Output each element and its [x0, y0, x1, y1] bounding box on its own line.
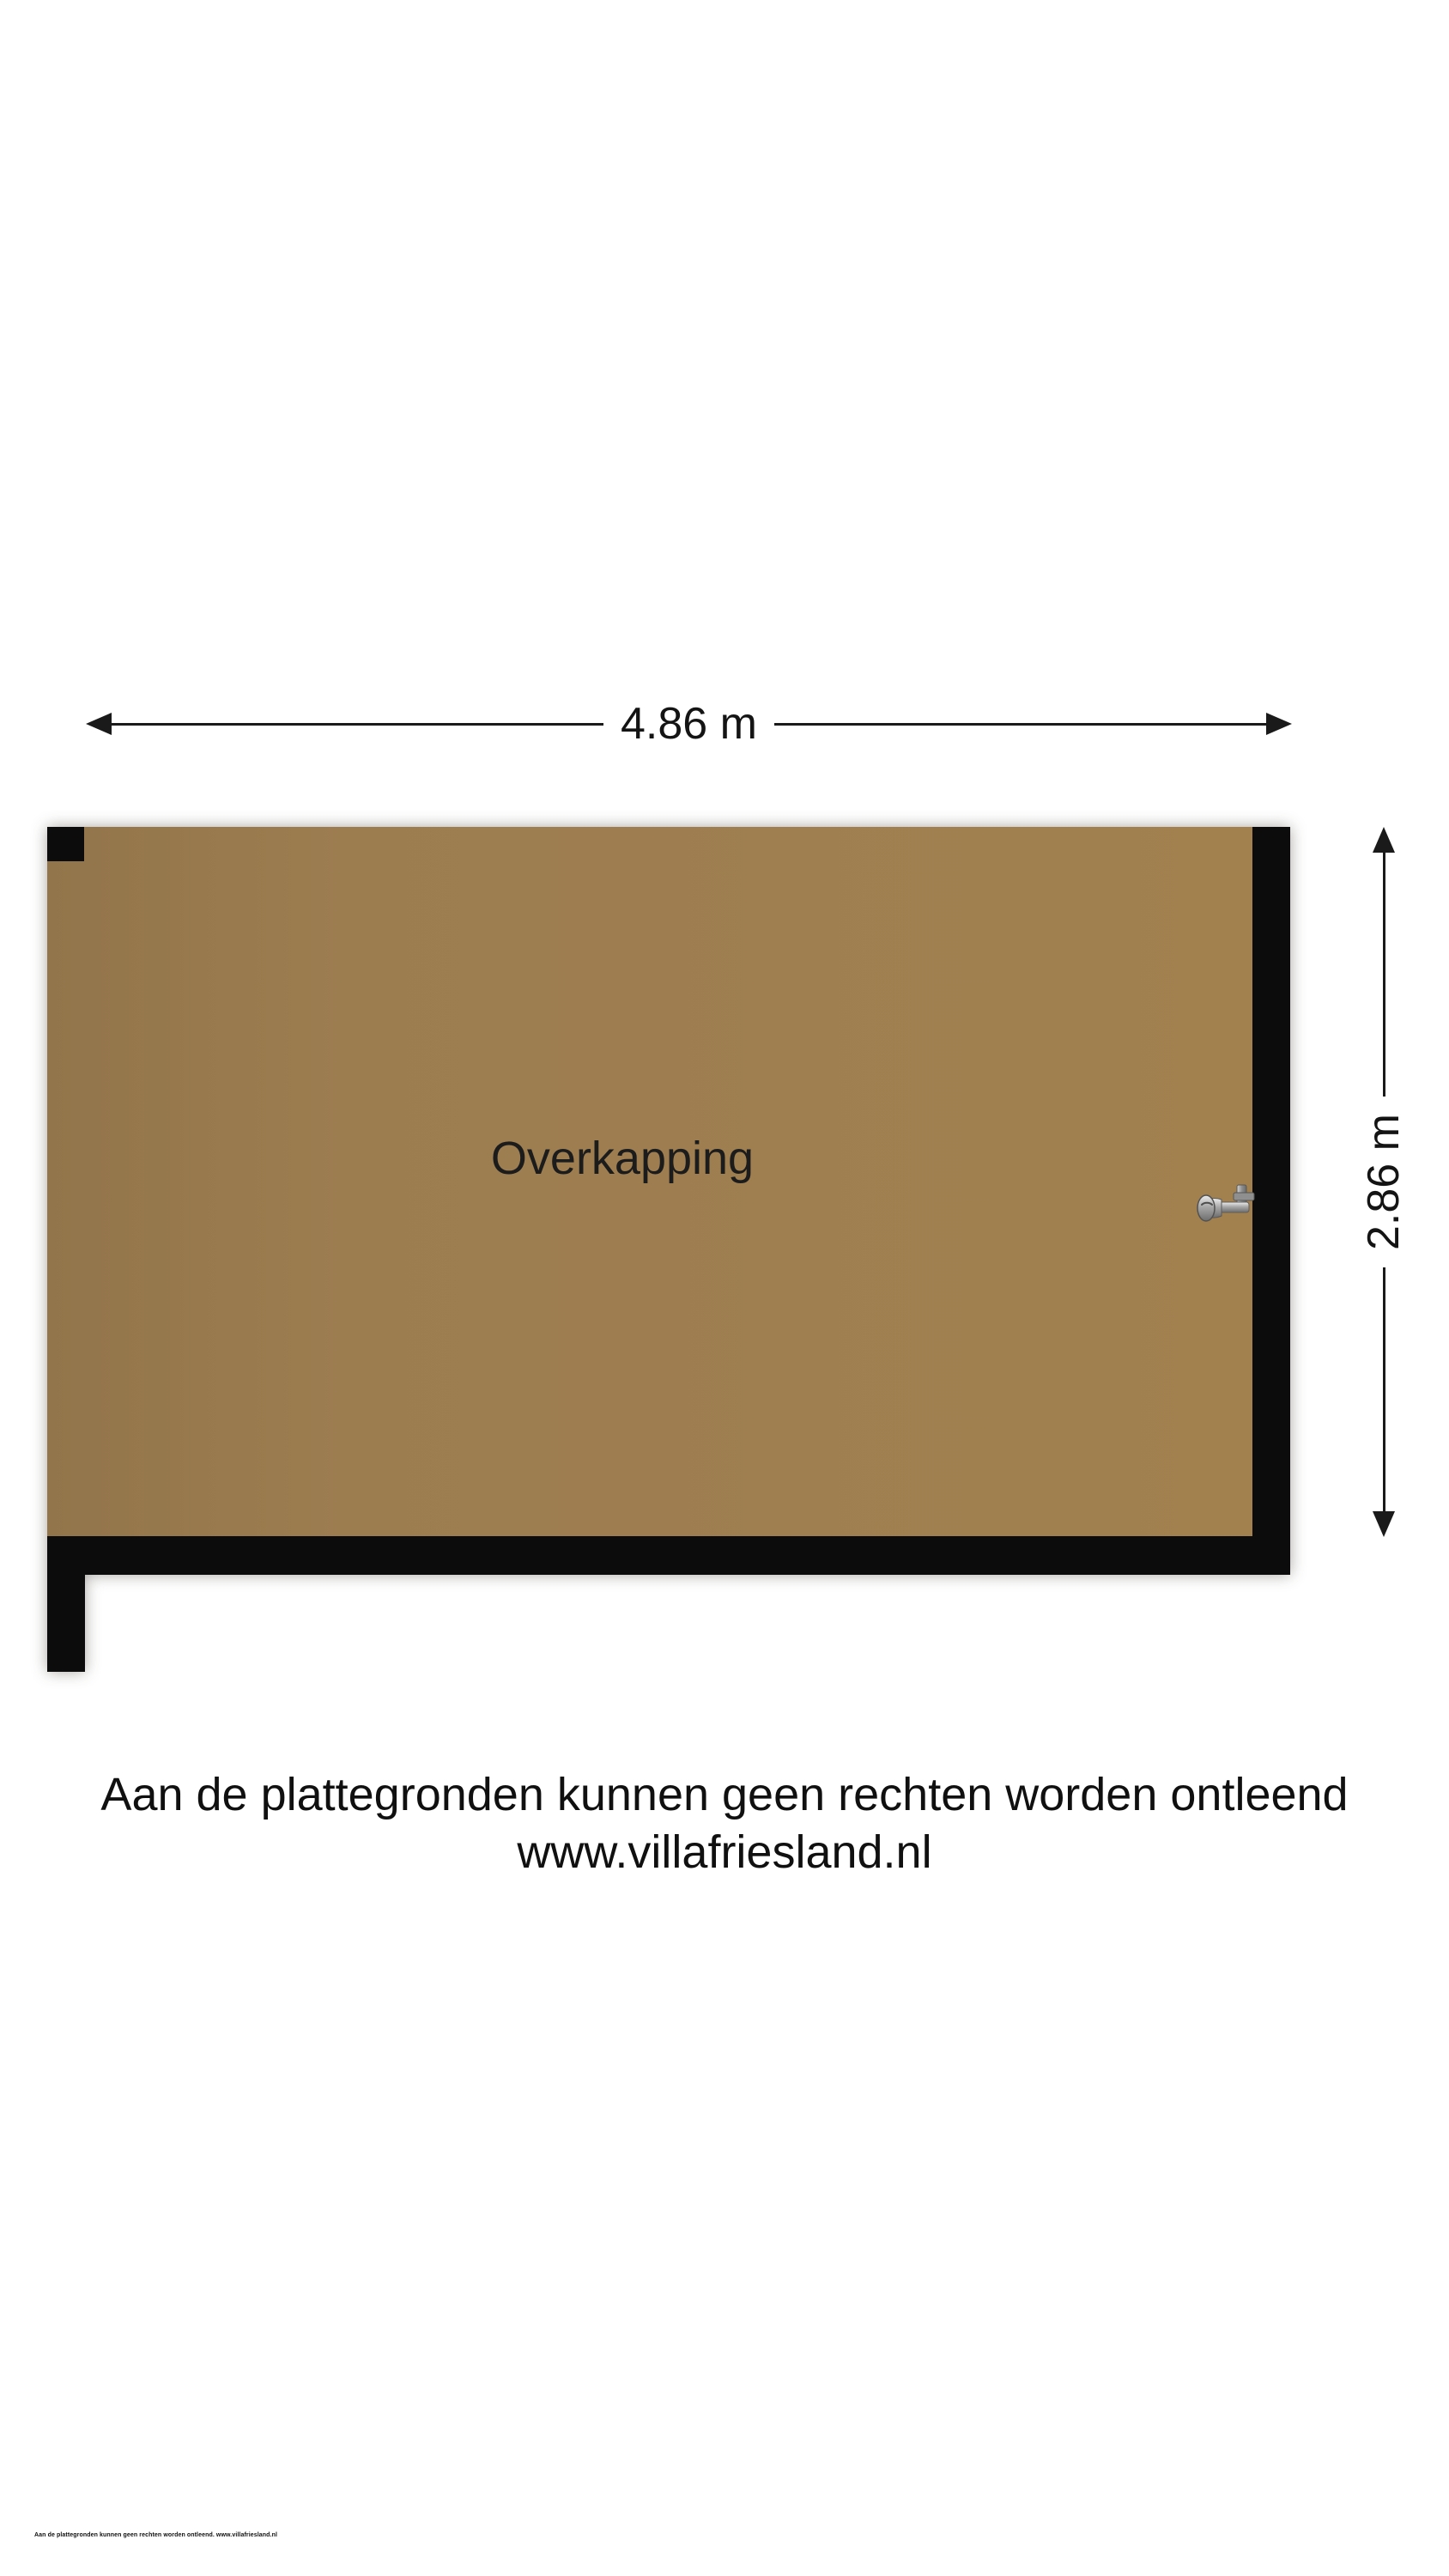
height-dimension-label: 2.86 m — [1363, 1097, 1404, 1267]
disclaimer: Aan de plattegronden kunnen geen rechten… — [0, 1766, 1449, 1881]
arrow-down-icon — [1373, 1511, 1395, 1537]
water-tap-icon — [1196, 1182, 1256, 1235]
wall-left-stub — [47, 1575, 85, 1672]
dimension-line-top-segment — [1383, 853, 1385, 1097]
arrow-up-icon — [1373, 827, 1395, 853]
disclaimer-line1: Aan de plattegronden kunnen geen rechten… — [0, 1766, 1449, 1824]
fine-print: Aan de plattegronden kunnen geen rechten… — [34, 2532, 277, 2538]
floorplan-drawing: Overkapping — [0, 0, 1449, 2576]
height-dimension: 2.86 m — [1363, 827, 1404, 1537]
wall-right — [1252, 827, 1290, 1575]
floorplan-page: 4.86 m — [0, 0, 1449, 2576]
dimension-line-bottom-segment — [1383, 1267, 1385, 1511]
corner-post — [47, 827, 84, 861]
room-label: Overkapping — [491, 1132, 754, 1185]
wall-bottom — [47, 1536, 1290, 1575]
disclaimer-website: www.villafriesland.nl — [0, 1824, 1449, 1881]
